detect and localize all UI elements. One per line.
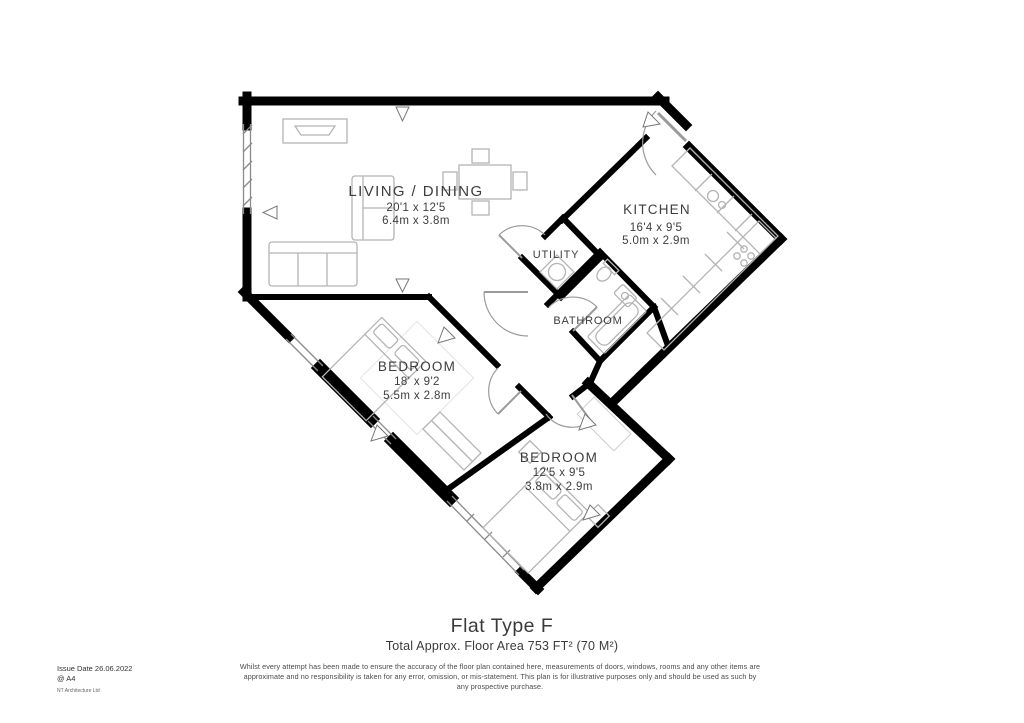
furniture (269, 119, 778, 573)
kitchen-dim-imperial: 16'4 x 9'5 (630, 222, 683, 234)
bedroom-2-label: BEDROOM 12'5 x 9'5 3.8m x 2.9m (520, 450, 598, 493)
living-dining-label: LIVING / DINING 20'1 x 12'5 6.4m x 3.8m (348, 183, 483, 227)
bedroom-1-dim-metric: 5.5m x 2.8m (383, 390, 451, 402)
sofa-large (269, 242, 357, 286)
bedroom-2-dim-metric: 3.8m x 2.9m (525, 481, 593, 493)
bedroom-1-dim-imperial: 18' x 9'2 (394, 376, 440, 388)
disclaimer-line-2: approximate and no responsibility is tak… (0, 672, 1000, 682)
dining-table (443, 149, 527, 215)
bathroom-name: BATHROOM (553, 315, 622, 327)
bedroom-1-label: BEDROOM 18' x 9'2 5.5m x 2.8m (378, 359, 456, 402)
plan-subtitle: Total Approx. Floor Area 753 FT² (70 M²) (0, 639, 1004, 653)
exterior-walls (243, 96, 781, 589)
floor-plan-page: LIVING / DINING 20'1 x 12'5 6.4m x 3.8m … (0, 0, 1024, 723)
bedroom-2-name: BEDROOM (520, 450, 598, 465)
door-bedroom-1 (489, 368, 521, 414)
kitchen-counter (647, 148, 778, 350)
kitchen-label: KITCHEN 16'4 x 9'5 5.0m x 2.9m (622, 202, 691, 247)
bedroom-1-name: BEDROOM (378, 359, 456, 374)
kitchen-sink (708, 191, 719, 202)
wardrobe (423, 412, 481, 470)
disclaimer-line-3: any prospective purchase. (0, 682, 1000, 692)
utility-name: UTILITY (533, 249, 580, 261)
kitchen-dim-metric: 5.0m x 2.9m (622, 235, 690, 247)
utility-label: UTILITY (533, 249, 580, 261)
tv-unit (283, 119, 347, 143)
bathroom-label: BATHROOM (553, 315, 622, 327)
plan-title: Flat Type F (0, 615, 1004, 638)
living-dining-dim-imperial: 20'1 x 12'5 (386, 202, 445, 214)
wall-markers (263, 107, 660, 520)
disclaimer: Whilst every attempt has been made to en… (0, 662, 1000, 693)
living-dining-dim-metric: 6.4m x 3.8m (382, 215, 450, 227)
living-dining-name: LIVING / DINING (348, 183, 483, 200)
bedroom-2-dim-imperial: 12'5 x 9'5 (533, 467, 586, 479)
door-living-hall (484, 292, 528, 336)
kitchen-name: KITCHEN (623, 202, 691, 217)
disclaimer-line-1: Whilst every attempt has been made to en… (0, 662, 1000, 672)
